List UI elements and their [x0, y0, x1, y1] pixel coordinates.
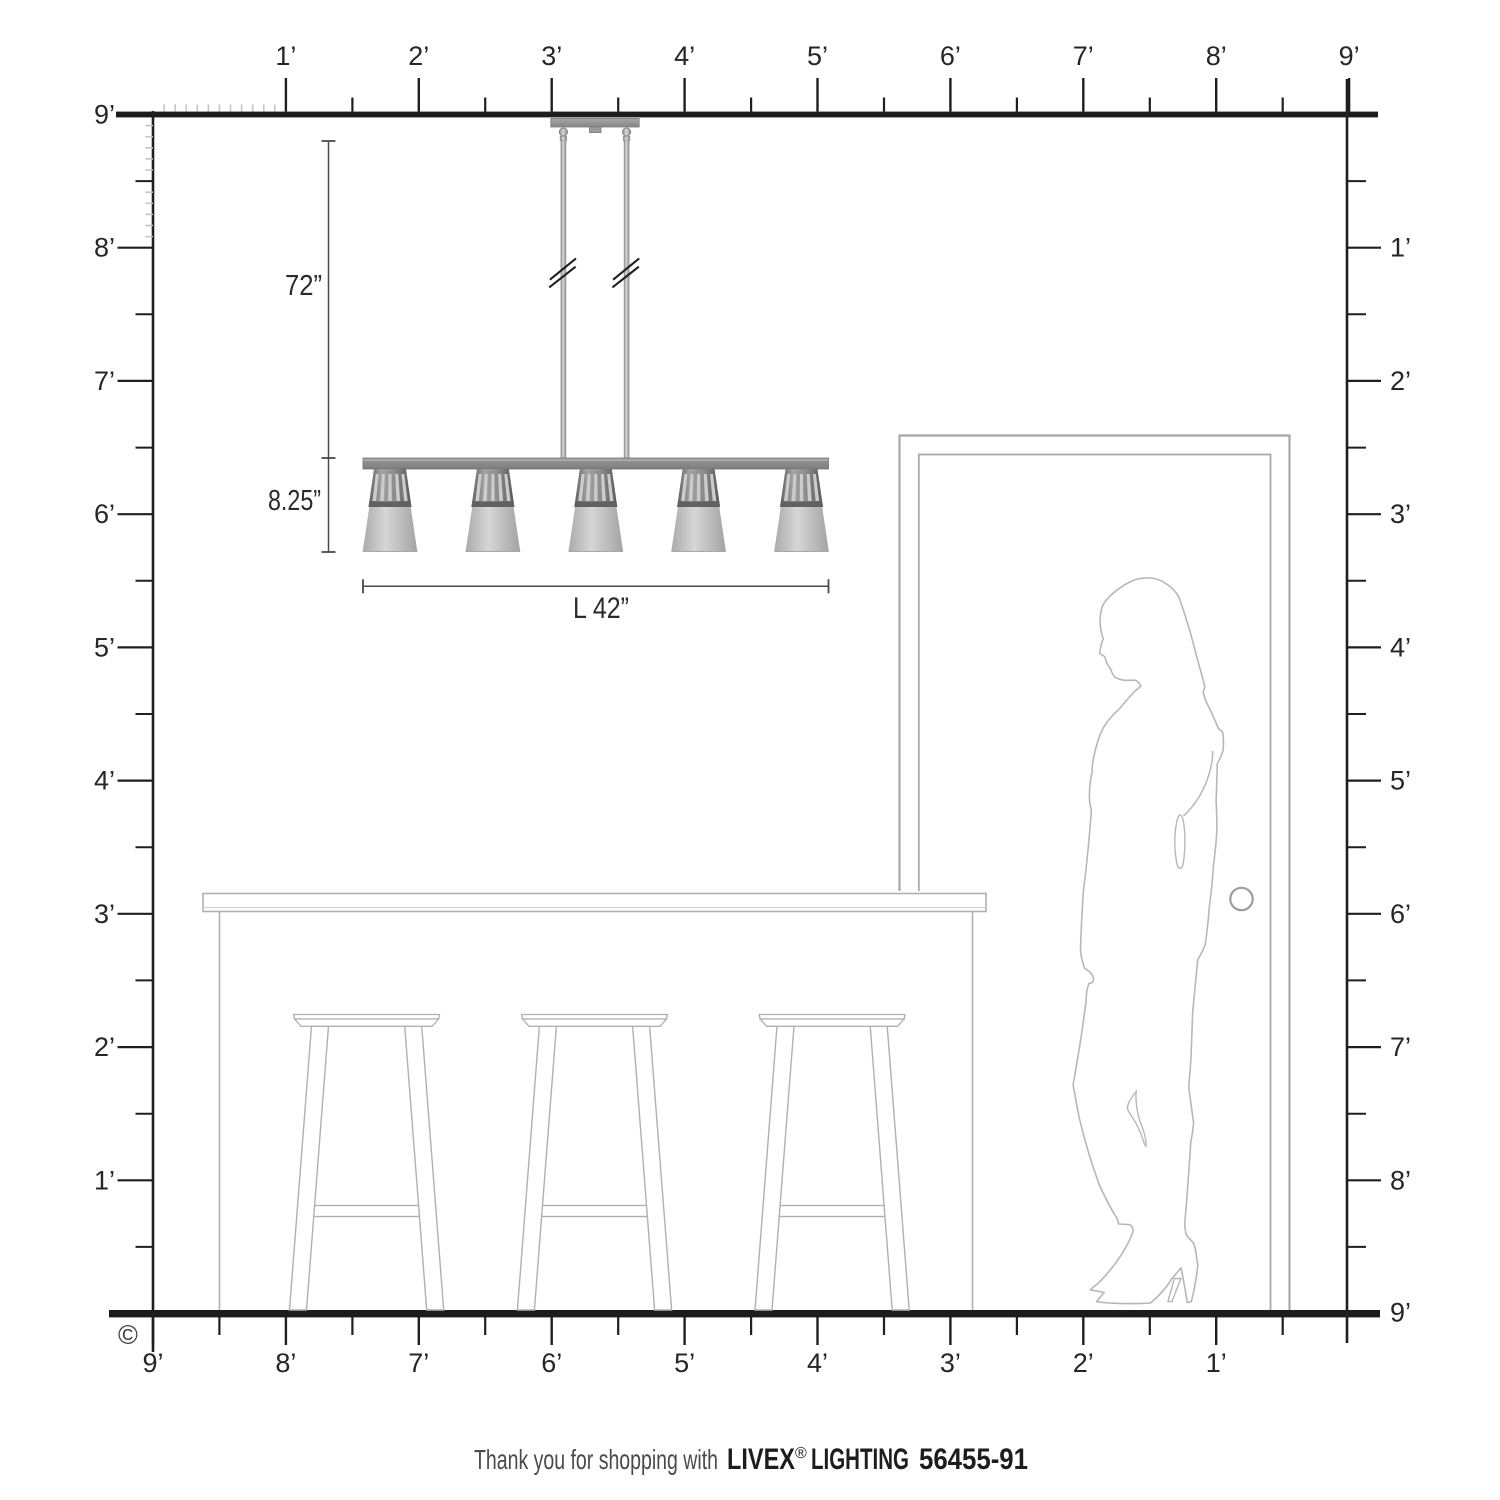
svg-text:6’: 6’	[940, 41, 961, 71]
svg-text:5’: 5’	[94, 632, 115, 662]
svg-text:5’: 5’	[1390, 766, 1411, 796]
svg-text:2’: 2’	[1390, 366, 1411, 396]
svg-text:72”: 72”	[285, 270, 322, 302]
svg-text:©: ©	[118, 1320, 138, 1350]
svg-text:1’: 1’	[1390, 233, 1411, 263]
svg-text:8’: 8’	[1206, 41, 1227, 71]
svg-text:3’: 3’	[940, 1348, 961, 1378]
svg-text:®: ®	[795, 1445, 807, 1462]
svg-text:2’: 2’	[1073, 1348, 1094, 1378]
svg-text:LIVEX: LIVEX	[727, 1443, 795, 1476]
svg-text:1’: 1’	[94, 1165, 115, 1195]
svg-text:4’: 4’	[1390, 632, 1411, 662]
svg-text:1’: 1’	[1206, 1348, 1227, 1378]
svg-text:7’: 7’	[94, 366, 115, 396]
svg-text:9’: 9’	[142, 1348, 163, 1378]
svg-text:9’: 9’	[1390, 1298, 1411, 1328]
svg-text:9’: 9’	[1339, 41, 1360, 71]
svg-text:5’: 5’	[674, 1348, 695, 1378]
svg-text:4’: 4’	[94, 766, 115, 796]
svg-text:1’: 1’	[275, 41, 296, 71]
svg-text:3’: 3’	[541, 41, 562, 71]
svg-text:Thank you for shopping with: Thank you for shopping with	[474, 1444, 718, 1475]
svg-text:8’: 8’	[94, 233, 115, 263]
svg-text:4’: 4’	[674, 41, 695, 71]
svg-text:9’: 9’	[94, 100, 115, 130]
svg-text:56455-91: 56455-91	[919, 1443, 1028, 1476]
svg-text:8’: 8’	[275, 1348, 296, 1378]
svg-text:6’: 6’	[94, 499, 115, 529]
svg-text:2’: 2’	[94, 1032, 115, 1062]
svg-text:L 42”: L 42”	[573, 592, 629, 625]
svg-text:3’: 3’	[1390, 499, 1411, 529]
svg-text:6’: 6’	[541, 1348, 562, 1378]
svg-text:7’: 7’	[1390, 1032, 1411, 1062]
svg-text:2’: 2’	[408, 41, 429, 71]
svg-text:6’: 6’	[1390, 899, 1411, 929]
svg-text:7’: 7’	[408, 1348, 429, 1378]
svg-text:8.25”: 8.25”	[268, 485, 321, 517]
svg-text:4’: 4’	[807, 1348, 828, 1378]
svg-text:5’: 5’	[807, 41, 828, 71]
svg-text:3’: 3’	[94, 899, 115, 929]
svg-text:8’: 8’	[1390, 1165, 1411, 1195]
svg-text:7’: 7’	[1073, 41, 1094, 71]
svg-text:LIGHTING: LIGHTING	[811, 1443, 909, 1476]
